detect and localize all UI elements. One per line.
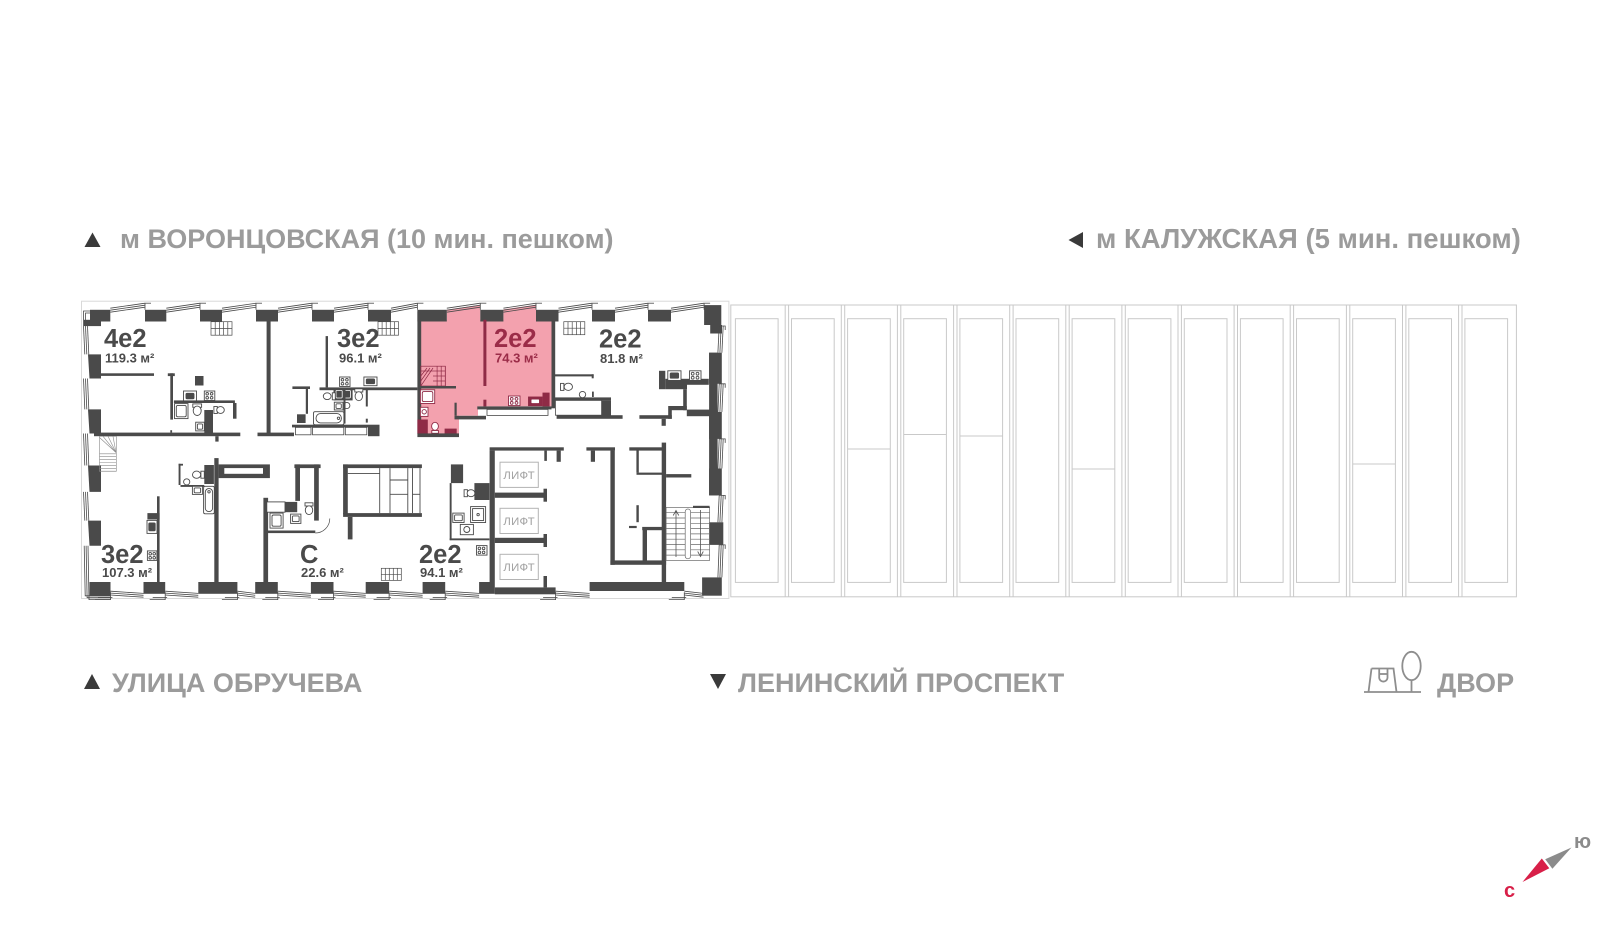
svg-text:22.6 м²: 22.6 м² xyxy=(301,565,345,580)
svg-text:2е2: 2е2 xyxy=(599,326,642,354)
svg-text:м КАЛУЖСКАЯ (5 мин. пешком): м КАЛУЖСКАЯ (5 мин. пешком) xyxy=(1096,223,1521,254)
svg-text:96.1 м²: 96.1 м² xyxy=(339,351,383,366)
svg-text:3е2: 3е2 xyxy=(337,325,380,353)
svg-text:4е2: 4е2 xyxy=(104,325,147,353)
svg-text:94.1 м²: 94.1 м² xyxy=(420,565,464,580)
svg-text:119.3 м²: 119.3 м² xyxy=(105,351,155,366)
svg-text:ДВОР: ДВОР xyxy=(1437,668,1514,698)
svg-text:м ВОРОНЦОВСКАЯ (10 мин. пешко: м ВОРОНЦОВСКАЯ (10 мин. пешком) xyxy=(120,224,614,254)
svg-text:ю: ю xyxy=(1574,831,1591,853)
svg-text:74.3 м²: 74.3 м² xyxy=(495,351,539,366)
svg-text:ЛИФТ: ЛИФТ xyxy=(503,562,535,574)
svg-text:с: с xyxy=(1504,880,1515,902)
svg-text:ЛИФТ: ЛИФТ xyxy=(503,516,535,528)
svg-text:УЛИЦА ОБРУЧЕВА: УЛИЦА ОБРУЧЕВА xyxy=(112,668,362,698)
svg-text:ЛИФТ: ЛИФТ xyxy=(503,470,535,482)
svg-text:ЛЕНИНСКИЙ ПРОСПЕКТ: ЛЕНИНСКИЙ ПРОСПЕКТ xyxy=(738,667,1065,698)
svg-text:107.3 м²: 107.3 м² xyxy=(102,565,153,580)
svg-text:81.8 м²: 81.8 м² xyxy=(600,351,644,366)
svg-text:2е2: 2е2 xyxy=(494,325,537,353)
